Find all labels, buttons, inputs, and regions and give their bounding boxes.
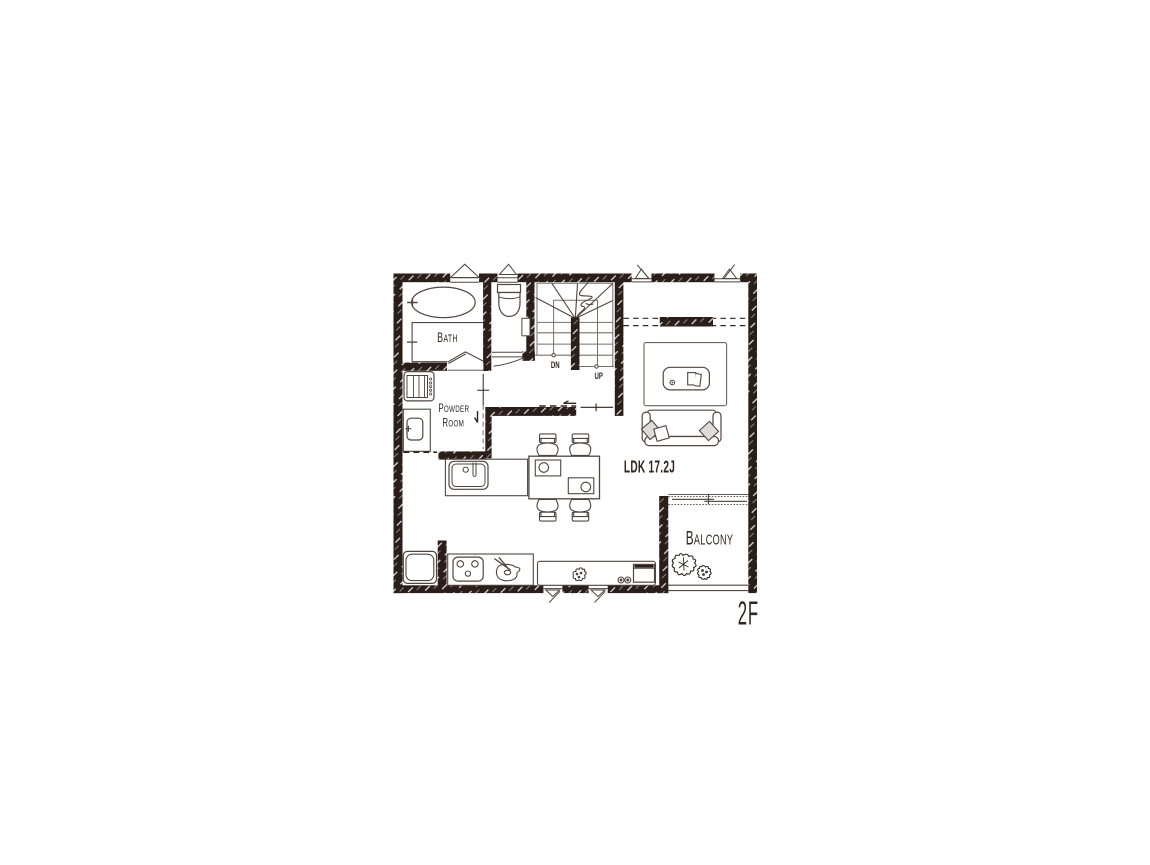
svg-text:DN: DN <box>551 360 560 371</box>
svg-text:2F: 2F <box>738 594 759 632</box>
svg-text:BALCONY: BALCONY <box>686 529 734 549</box>
svg-text:UP: UP <box>594 370 603 381</box>
svg-text:LDK 17.2J: LDK 17.2J <box>624 458 675 478</box>
svg-text:BATH: BATH <box>437 330 458 345</box>
svg-text:POWDER: POWDER <box>438 402 469 415</box>
svg-text:ROOM: ROOM <box>442 417 464 430</box>
